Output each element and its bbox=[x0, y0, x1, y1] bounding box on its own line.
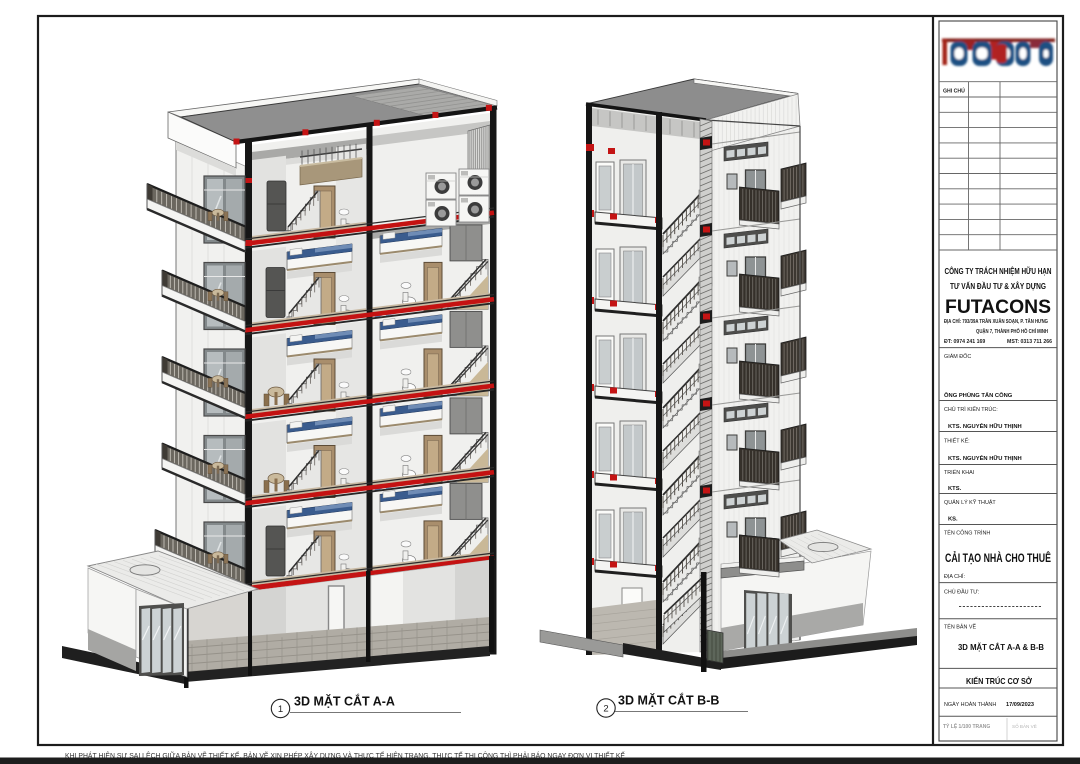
svg-text:GIÁM ĐỐC: GIÁM ĐỐC bbox=[944, 353, 971, 360]
svg-text:QUẢN LÝ KỸ THUẬT: QUẢN LÝ KỸ THUẬT bbox=[944, 499, 996, 506]
svg-text:3D MẶT CẮT A-A: 3D MẶT CẮT A-A bbox=[294, 694, 395, 709]
svg-text:TỶ LỆ 1/100 TRANG: TỶ LỆ 1/100 TRANG bbox=[943, 722, 990, 730]
svg-text:ĐỊA CHỈ: 793/39A TRẦN XUÂN SOẠ: ĐỊA CHỈ: 793/39A TRẦN XUÂN SOẠN, P. TÂN … bbox=[944, 318, 1048, 325]
svg-text:TÊN BẢN VẼ: TÊN BẢN VẼ bbox=[944, 623, 976, 631]
svg-text:3D MẶT CẮT A-A & B-B: 3D MẶT CẮT A-A & B-B bbox=[958, 642, 1044, 652]
svg-text:2: 2 bbox=[603, 704, 608, 715]
svg-text:3D MẶT CẮT B-B: 3D MẶT CẮT B-B bbox=[618, 693, 719, 708]
svg-text:KS.: KS. bbox=[948, 517, 958, 523]
svg-text:ĐỊA CHỈ:: ĐỊA CHỈ: bbox=[944, 573, 965, 580]
svg-text:ĐT: 0974 241 169: ĐT: 0974 241 169 bbox=[944, 339, 985, 345]
svg-text:CÔNG TY TRÁCH NHIỆM HỮU HẠN: CÔNG TY TRÁCH NHIỆM HỮU HẠN bbox=[945, 267, 1052, 276]
svg-text:TƯ VẤN ĐẦU TƯ & XÂY DỰNG: TƯ VẤN ĐẦU TƯ & XÂY DỰNG bbox=[950, 281, 1046, 291]
svg-text:NGÀY HOÀN THÀNH: NGÀY HOÀN THÀNH bbox=[944, 701, 996, 708]
svg-text:FUTACONS: FUTACONS bbox=[945, 297, 1051, 318]
svg-text:MST: 0313 711 266: MST: 0313 711 266 bbox=[1007, 339, 1052, 345]
svg-text:KTS. NGUYỄN HỮU THỊNH: KTS. NGUYỄN HỮU THỊNH bbox=[948, 423, 1022, 430]
svg-text:17/09/2023: 17/09/2023 bbox=[1006, 702, 1034, 708]
svg-text:CHỦ TRÌ KIẾN TRÚC:: CHỦ TRÌ KIẾN TRÚC: bbox=[944, 406, 998, 413]
svg-text:KIẾN TRÚC CƠ SỞ: KIẾN TRÚC CƠ SỞ bbox=[966, 675, 1033, 686]
svg-text:ÔNG PHÙNG TẤN CÔNG: ÔNG PHÙNG TẤN CÔNG bbox=[944, 391, 1013, 399]
svg-text:CHỦ ĐẦU TƯ:: CHỦ ĐẦU TƯ: bbox=[944, 589, 979, 596]
svg-text:1: 1 bbox=[278, 704, 283, 715]
svg-text:SỐ BẢN VẼ: SỐ BẢN VẼ bbox=[1012, 723, 1037, 729]
svg-text:KTS. NGUYỄN HỮU THỊNH: KTS. NGUYỄN HỮU THỊNH bbox=[948, 455, 1022, 462]
svg-text:THIẾT KẾ:: THIẾT KẾ: bbox=[944, 438, 970, 445]
svg-text:TÊN CÔNG TRÌNH: TÊN CÔNG TRÌNH bbox=[944, 529, 990, 537]
svg-text:TRIỂN KHAI: TRIỂN KHAI bbox=[944, 469, 974, 476]
svg-text:QUẬN 7, THÀNH PHỐ HỒ CHÍ MINH: QUẬN 7, THÀNH PHỐ HỒ CHÍ MINH bbox=[976, 327, 1048, 335]
svg-text:KTS.: KTS. bbox=[948, 486, 962, 492]
svg-text:CẢI TẠO NHÀ CHO THUÊ: CẢI TẠO NHÀ CHO THUÊ bbox=[945, 550, 1051, 565]
svg-text:GHI CHÚ: GHI CHÚ bbox=[943, 88, 965, 95]
